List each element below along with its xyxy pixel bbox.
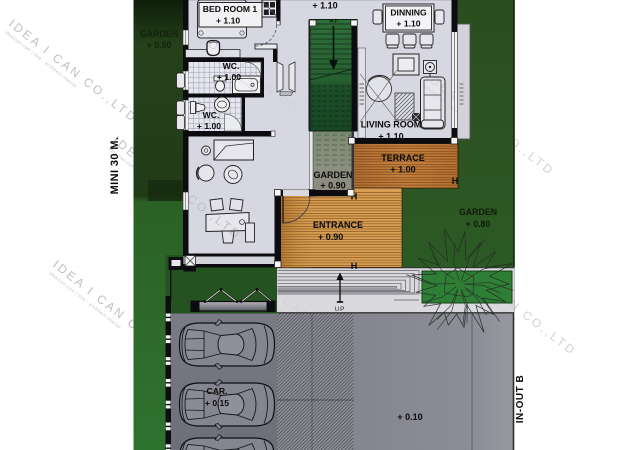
svg-text:+ 0.10: + 0.10 (397, 412, 422, 422)
svg-text:UP: UP (335, 306, 346, 313)
svg-text:ENTRANCE: ENTRANCE (313, 220, 363, 230)
svg-text:GARDEN: GARDEN (140, 29, 178, 39)
svg-text:CAR.: CAR. (206, 386, 227, 396)
svg-text:GARDEN: GARDEN (459, 207, 497, 217)
svg-text:+ 1.10: + 1.10 (378, 132, 403, 142)
svg-text:+ 0.15: + 0.15 (205, 398, 229, 408)
svg-text:+ 1.00: + 1.00 (390, 165, 415, 175)
svg-text:WC.: WC. (203, 110, 220, 120)
svg-text:+ 0.90: + 0.90 (318, 232, 343, 242)
svg-text:GARDEN: GARDEN (313, 170, 352, 180)
svg-text:DINNING: DINNING (390, 8, 427, 18)
svg-text:+ 1.10: + 1.10 (396, 19, 420, 29)
svg-text:+ 1.10: + 1.10 (312, 1, 337, 11)
svg-text:+ 0.80: + 0.80 (147, 40, 172, 50)
svg-text:TERRACE: TERRACE (381, 153, 425, 163)
svg-text:BED ROOM 1: BED ROOM 1 (203, 4, 258, 14)
svg-text:+ 0.80: + 0.80 (466, 219, 491, 229)
svg-text:IN-OUT B: IN-OUT B (515, 375, 526, 423)
svg-text:LIVING ROOM: LIVING ROOM (361, 120, 422, 130)
svg-text:+ 1.00: + 1.00 (197, 121, 221, 131)
svg-text:H: H (452, 176, 459, 186)
svg-text:+ 0.90: + 0.90 (320, 181, 345, 191)
svg-text:+ 1.10: + 1.10 (216, 16, 240, 26)
svg-text:H: H (351, 261, 358, 271)
